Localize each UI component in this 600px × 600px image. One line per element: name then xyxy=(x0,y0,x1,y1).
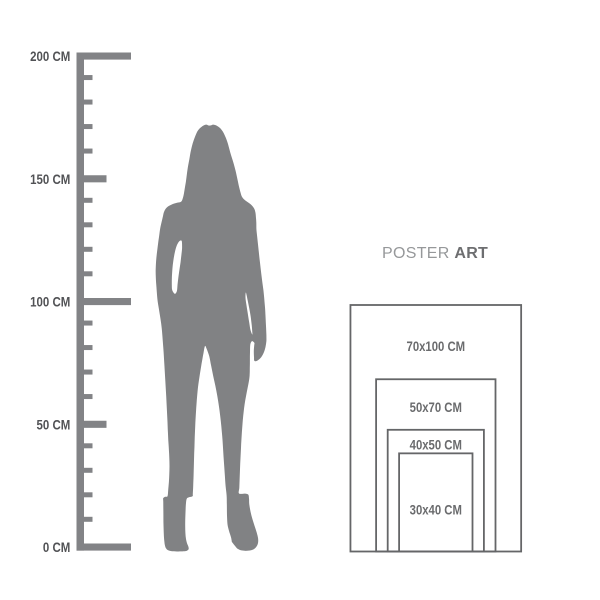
svg-text:POSTER ART: POSTER ART xyxy=(382,245,488,262)
svg-text:50x70 CM: 50x70 CM xyxy=(410,400,462,415)
svg-text:150 CM: 150 CM xyxy=(30,172,70,187)
svg-text:0 CM: 0 CM xyxy=(43,540,70,555)
svg-text:40x50 CM: 40x50 CM xyxy=(410,437,462,452)
svg-text:70x100 CM: 70x100 CM xyxy=(407,339,466,354)
svg-text:200 CM: 200 CM xyxy=(30,49,70,64)
svg-text:100 CM: 100 CM xyxy=(30,295,70,310)
svg-text:50 CM: 50 CM xyxy=(37,418,71,433)
svg-text:30x40 CM: 30x40 CM xyxy=(410,503,462,518)
